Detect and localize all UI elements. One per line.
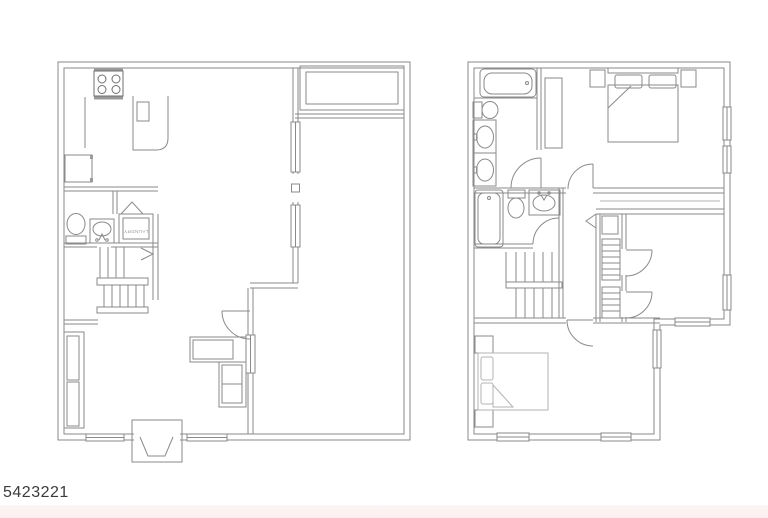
master-bathroom	[473, 68, 541, 188]
window-icon	[86, 434, 124, 441]
window-icon	[187, 434, 227, 441]
door-swing-icon	[533, 218, 559, 244]
nightstand-icon	[590, 70, 605, 87]
toilet-icon	[508, 190, 525, 218]
bifold-door-icon	[121, 202, 143, 214]
bed-icon	[478, 353, 548, 410]
window-icon	[675, 318, 710, 326]
hall-wall	[64, 320, 98, 324]
window-icon	[723, 146, 731, 173]
sofa-icon	[64, 332, 84, 428]
nightstand-icon	[475, 410, 493, 427]
listing-number: 5423221	[3, 484, 69, 502]
sectional-sofa-icon	[190, 337, 246, 407]
nightstand-icon	[681, 70, 696, 87]
stair-direction-arrow	[586, 214, 596, 228]
toilet-icon	[473, 102, 498, 119]
door-swing-icon	[626, 250, 652, 276]
living-room	[64, 332, 246, 428]
bedroom-2	[596, 214, 652, 322]
window-icon	[291, 205, 300, 247]
closet-shelving-icon	[602, 239, 620, 280]
double-vanity-sink-icon	[473, 120, 496, 186]
vanity-sink-icon	[529, 190, 560, 215]
powder-room: LAUNDRY	[64, 187, 158, 300]
bathtub-icon	[474, 69, 537, 98]
window-icon	[291, 122, 300, 172]
door-swing-icon	[511, 158, 541, 188]
closet-shelving-icon	[602, 287, 620, 318]
staircase-icon	[506, 214, 596, 318]
door-swing-icon	[568, 164, 593, 189]
toilet-icon	[66, 214, 86, 245]
hall-wall	[474, 318, 660, 346]
laundry-closet: LAUNDRY	[119, 202, 153, 243]
door-swing-icon	[626, 292, 652, 318]
window-icon	[723, 107, 731, 140]
closet-strip	[596, 201, 724, 214]
window-icon	[723, 275, 731, 310]
floor-plans-drawing: LAUNDRY	[0, 0, 768, 518]
laundry-label: LAUNDRY	[124, 229, 149, 234]
wardrobe-icon	[545, 78, 562, 148]
footer-band	[0, 505, 768, 518]
rear-deck	[295, 66, 404, 118]
kitchen-sink-icon	[137, 102, 149, 121]
stove-icon	[94, 68, 123, 100]
stair-direction-arrow	[141, 248, 153, 260]
interior-wall	[246, 283, 298, 434]
second-floor-plan	[468, 62, 731, 441]
door-swing-icon	[567, 320, 593, 346]
kitchen-counter	[85, 96, 168, 150]
bathtub-icon	[475, 190, 503, 247]
window-icon	[497, 433, 529, 441]
vanity-sink-icon	[90, 219, 114, 243]
kitchen	[65, 68, 168, 183]
window-icon	[653, 330, 661, 368]
window-icon	[601, 433, 631, 441]
exterior-walls	[468, 62, 730, 440]
master-bedroom	[474, 68, 724, 193]
exterior-walls	[58, 62, 410, 440]
window-icon	[246, 335, 255, 373]
entry-stoop	[132, 420, 182, 462]
bed-icon	[608, 68, 678, 142]
bedroom-3	[475, 336, 548, 427]
refrigerator-icon	[65, 155, 93, 182]
first-floor-plan: LAUNDRY	[58, 62, 410, 462]
hall-bathroom	[474, 188, 563, 318]
floor-plan-page: LAUNDRY	[0, 0, 768, 518]
nightstand-icon	[475, 336, 493, 353]
linen-closet	[602, 216, 618, 234]
kitchen-dining-wall	[291, 68, 300, 283]
staircase-icon	[97, 247, 153, 313]
